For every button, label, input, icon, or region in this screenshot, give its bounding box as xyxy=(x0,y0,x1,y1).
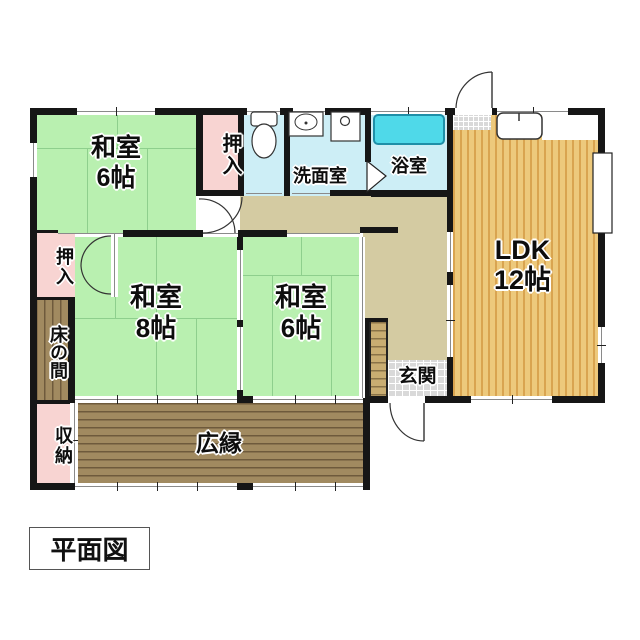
room-name: 和室 xyxy=(36,133,196,163)
room-name: 浴室 xyxy=(391,156,427,176)
room-name: 洗面室 xyxy=(293,166,347,186)
sink-drain-icon xyxy=(305,122,308,125)
label-oshiire-left: 押入 xyxy=(37,238,74,296)
page-title: 平面図 xyxy=(50,530,128,567)
room-size: 6帖 xyxy=(36,163,196,193)
washing-machine-drain-icon xyxy=(341,117,350,126)
room-name: 玄関 xyxy=(398,366,436,387)
bathtub-icon xyxy=(374,115,444,144)
label-yokushitsu: 浴室 xyxy=(371,156,447,178)
toilet-bowl-icon xyxy=(252,124,276,158)
label-shuno: 収納 xyxy=(36,417,73,475)
room-name: 押入 xyxy=(219,133,241,177)
room-name: 押入 xyxy=(54,247,74,287)
room-name: 和室 xyxy=(243,282,359,313)
room-name: 収納 xyxy=(53,426,73,466)
closet-door-arc xyxy=(81,236,111,266)
label-hiroen: 広縁 xyxy=(75,430,363,458)
label-tokonoma: 床の間 xyxy=(36,312,68,392)
label-washitsu6-mid: 和室 6帖 xyxy=(243,282,359,344)
title-box: 平面図 xyxy=(29,527,150,570)
room-size: 6帖 xyxy=(243,313,359,344)
room-name: 広縁 xyxy=(196,430,242,456)
room-name: 和室 xyxy=(75,282,237,313)
floor-plan: 和室 6帖 押入 洗面室 浴室 LDK 12帖 和室 8帖 和室 6帖 押入 床… xyxy=(0,0,640,640)
door-swing-arc xyxy=(199,199,235,233)
label-washitsu6-top: 和室 6帖 xyxy=(36,133,196,193)
backdoor-swing-arc xyxy=(456,72,492,108)
door-swing-arc xyxy=(203,197,242,233)
room-size: 12帖 xyxy=(453,266,592,296)
room-size: 8帖 xyxy=(75,313,237,344)
label-senmenshitsu: 洗面室 xyxy=(278,166,362,188)
label-oshiire-top: 押入 xyxy=(204,120,242,190)
bay-window xyxy=(593,153,612,233)
room-name: 床の間 xyxy=(48,325,68,379)
label-genkan: 玄関 xyxy=(388,366,447,389)
label-ldk: LDK 12帖 xyxy=(453,236,592,295)
label-washitsu8: 和室 8帖 xyxy=(75,282,237,344)
room-name: LDK xyxy=(453,236,592,266)
entry-door-swing-arc xyxy=(390,403,424,441)
